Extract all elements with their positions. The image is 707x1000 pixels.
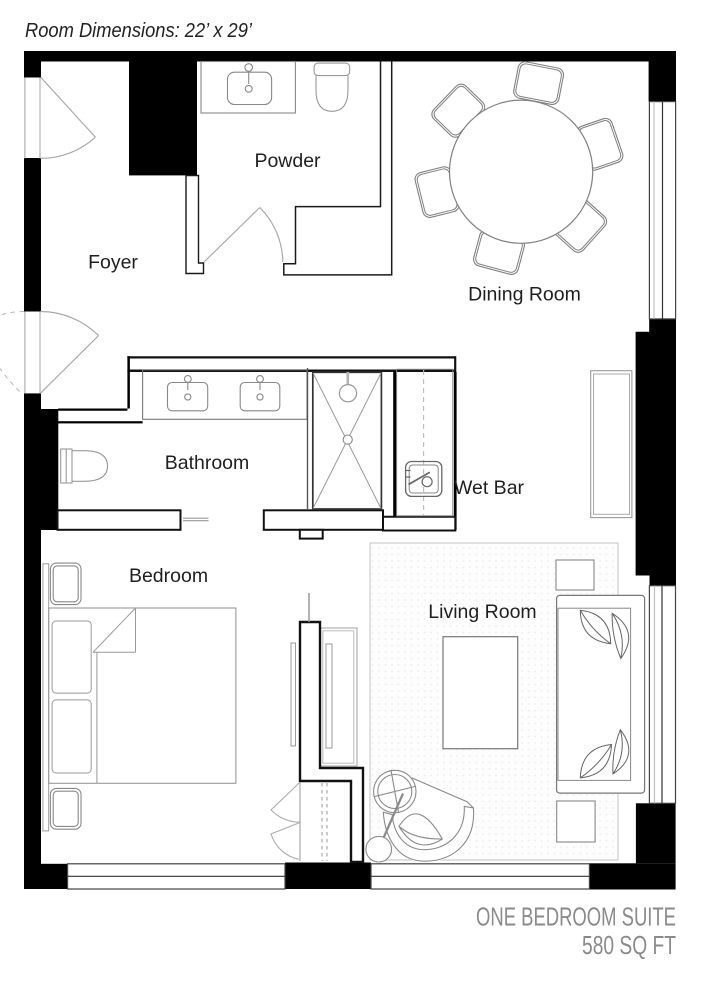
svg-text:Foyer: Foyer	[88, 252, 138, 274]
svg-text:Wet Bar: Wet Bar	[454, 477, 525, 499]
svg-text:Bathroom: Bathroom	[165, 452, 250, 474]
svg-text:Living Room: Living Room	[428, 601, 536, 623]
svg-text:Room Dimensions: 22’ x 29’: Room Dimensions: 22’ x 29’	[25, 20, 253, 42]
svg-text:Bedroom: Bedroom	[129, 565, 208, 587]
svg-text:580 SQ FT: 580 SQ FT	[582, 930, 676, 960]
svg-text:Dining Room: Dining Room	[468, 284, 581, 306]
svg-text:Powder: Powder	[254, 150, 321, 172]
svg-text:ONE BEDROOM SUITE: ONE BEDROOM SUITE	[476, 902, 676, 932]
